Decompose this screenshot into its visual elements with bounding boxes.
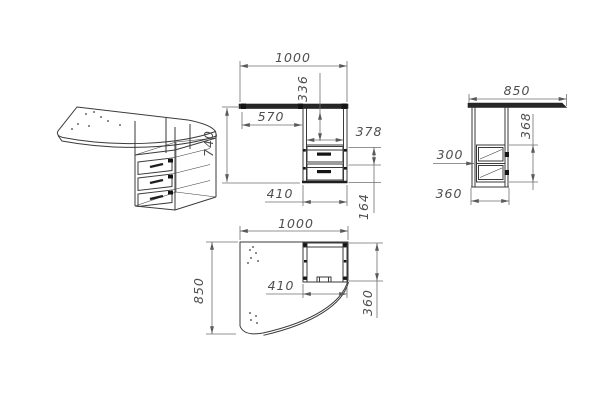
side-depth-label: 850 xyxy=(504,83,531,98)
plan-hole-marks xyxy=(247,246,259,324)
iso-drawer-1 xyxy=(138,149,210,175)
plan-cabinet xyxy=(303,243,347,282)
side-tabletop xyxy=(468,103,567,108)
iso-tabletop-outline xyxy=(57,107,215,144)
iso-view xyxy=(57,107,216,210)
front-drawer-pitch-label: 164 xyxy=(356,193,371,220)
drawer-handle xyxy=(317,153,331,156)
side-unit-height-label: 368 xyxy=(518,112,533,139)
plan-cabinet-depth-label: 360 xyxy=(360,289,375,316)
front-screw-marks xyxy=(303,149,346,170)
iso-surface-marks xyxy=(71,111,121,130)
plan-depth-label: 850 xyxy=(191,277,206,304)
plan-width-label: 1000 xyxy=(278,216,314,231)
plan-cabinet-width-label: 410 xyxy=(268,278,295,293)
front-inner-width-label: 378 xyxy=(356,124,383,139)
front-dimensions: 1000 336 570 378 740 410 164 xyxy=(201,50,382,220)
iso-drawer-2 xyxy=(138,165,210,191)
side-view: 850 368 300 360 xyxy=(433,83,567,205)
front-height-label: 740 xyxy=(201,130,216,157)
front-tabletop xyxy=(239,104,348,109)
front-left-offset-label: 570 xyxy=(258,109,285,124)
side-drawer-depth-label: 300 xyxy=(437,147,464,162)
side-drawer-unit xyxy=(477,145,510,182)
drawing-canvas: 1000 336 570 378 740 410 164 xyxy=(0,0,600,400)
front-cabinet-width-label: 410 xyxy=(267,186,294,201)
front-width-label: 1000 xyxy=(275,50,311,65)
front-drawer-2 xyxy=(307,164,343,180)
plan-dimensions: 1000 850 360 410 xyxy=(191,216,383,334)
drawer-handle xyxy=(317,170,331,173)
front-view: 1000 336 570 378 740 410 164 xyxy=(201,50,382,220)
front-niche-height-label: 336 xyxy=(295,75,310,102)
plan-view: 1000 850 360 410 xyxy=(191,216,383,335)
iso-drawers xyxy=(138,149,210,207)
front-drawer-1 xyxy=(307,147,343,163)
technical-drawing: 1000 336 570 378 740 410 164 xyxy=(0,0,600,400)
side-cabinet-depth-label: 360 xyxy=(436,186,463,201)
